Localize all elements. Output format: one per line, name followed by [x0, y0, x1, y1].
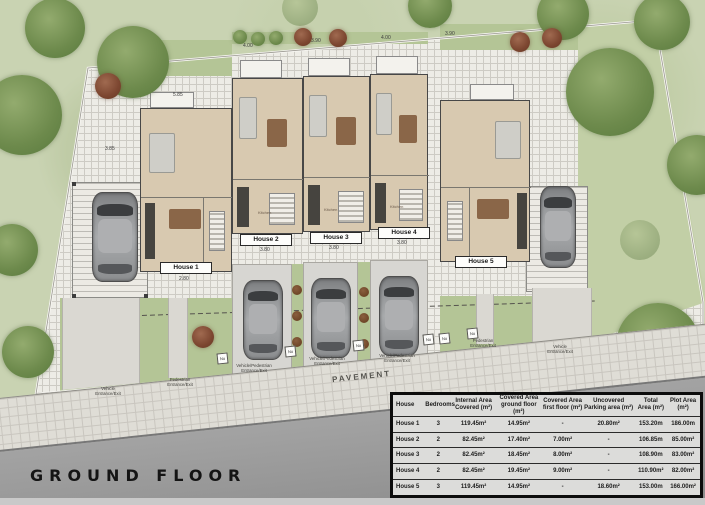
table-cell: -	[542, 484, 583, 491]
dimension-label: 2.80	[179, 276, 189, 282]
dining-table	[169, 209, 201, 229]
post	[72, 182, 76, 186]
dining-table	[399, 115, 417, 143]
pedestrian-path-left	[168, 298, 188, 378]
post	[72, 294, 76, 298]
table-cell: 14.95m²	[496, 484, 542, 491]
table-cell: 119.45m²	[451, 421, 496, 428]
dimension-label: 3.90	[311, 38, 321, 44]
dimension-label: 3.90	[445, 31, 455, 37]
table-header-cell: Bedrooms	[425, 402, 451, 409]
table-header-cell: Uncovered Parking area (m²)	[583, 398, 634, 412]
dining-table	[477, 199, 509, 219]
table-cell: 7.00m²	[542, 437, 583, 444]
red-tree-icon	[294, 28, 312, 46]
table-cell: 119.45m²	[451, 484, 496, 491]
tree-icon	[251, 32, 265, 46]
red-tree-icon	[542, 28, 562, 48]
entrance-label: Vehicle Entrance/Exit	[528, 344, 592, 355]
entrance-label: Vehicle/Pedestrian Entrance/Exit	[365, 353, 429, 364]
dining-table	[267, 119, 287, 147]
table-header-cell: Plot Area (m²)	[668, 398, 699, 412]
table-cell: 110.90m²	[634, 468, 668, 475]
table-row: House 2 2 82.45m² 17.40m² 7.00m² - 106.8…	[393, 432, 700, 448]
tree-icon	[2, 326, 54, 378]
red-tree-icon	[329, 29, 347, 47]
vehicle-entrance-path-left	[62, 298, 140, 393]
table-cell: -	[583, 468, 634, 475]
bush-icon	[359, 287, 369, 297]
table-cell: 18.60m²	[583, 484, 634, 491]
table-cell: 19.45m²	[496, 468, 542, 475]
house-number-sign: No	[352, 339, 364, 351]
tree-icon	[566, 48, 654, 136]
sofa	[309, 95, 327, 137]
table-cell: 166.00m²	[668, 484, 699, 491]
tree-icon	[620, 220, 660, 260]
table-cell: 2	[425, 437, 451, 444]
table-cell: 106.85m	[634, 437, 668, 444]
car-house5	[540, 186, 576, 268]
sofa	[149, 133, 175, 173]
table-header-cell: Total Area (m²)	[634, 398, 668, 412]
terrace	[470, 84, 514, 100]
table-cell: -	[583, 437, 634, 444]
terrace	[150, 92, 194, 108]
bush-icon	[359, 313, 369, 323]
table-row: House 1 3 119.45m² 14.95m² - 20.80m² 153…	[393, 416, 700, 432]
table-cell: 82.45m²	[451, 452, 496, 459]
table-row: House 5 3 119.45m² 14.95m² - 18.60m² 153…	[393, 479, 700, 495]
page-title: GROUND FLOOR	[30, 466, 246, 485]
table-cell: 14.95m²	[496, 421, 542, 428]
table-cell: 8.00m²	[542, 452, 583, 459]
table-cell: -	[583, 452, 634, 459]
house-1-floorplan	[140, 108, 232, 272]
stairs	[209, 211, 225, 251]
table-cell: House 3	[393, 452, 425, 459]
entrance-label: Vehicle/Pedestrian Entrance/Exit	[222, 363, 286, 374]
house-number-sign: No	[466, 327, 478, 339]
tree-icon	[269, 31, 283, 45]
dimension-label: 4.00	[243, 43, 253, 49]
dimension-label: 3.80	[260, 247, 270, 253]
tree-icon	[233, 30, 247, 44]
red-tree-icon	[192, 326, 214, 348]
table-cell: 153.00m	[634, 484, 668, 491]
house-3-label: House 3	[310, 232, 362, 244]
kitchen-counter	[375, 183, 386, 223]
table-cell: 83.00m²	[668, 452, 699, 459]
car-house3	[311, 278, 351, 358]
house-number-sign: No	[422, 333, 434, 345]
table-cell: 3	[425, 484, 451, 491]
table-cell: 17.40m²	[496, 437, 542, 444]
house-number-sign: No	[216, 352, 228, 364]
table-cell: House 2	[393, 437, 425, 444]
post	[144, 294, 148, 298]
table-cell: 82.45m²	[451, 437, 496, 444]
dining-table	[336, 117, 356, 145]
table-cell: 3	[425, 421, 451, 428]
table-cell: House 1	[393, 421, 425, 428]
dimension-label: 3.80	[397, 240, 407, 246]
table-cell: 82.00m²	[668, 468, 699, 475]
car-house4	[379, 276, 419, 356]
room-label-kitchen: Kitchen	[390, 204, 403, 209]
sofa	[376, 93, 392, 135]
house-number-sign: No	[284, 345, 296, 357]
room-label-kitchen: Kitchen	[258, 210, 271, 215]
house-2-label: House 2	[240, 234, 292, 246]
kitchen-counter	[308, 185, 320, 225]
table-cell: 153.20m	[634, 421, 668, 428]
room-label-kitchen: Kitchen	[324, 207, 337, 212]
terrace	[308, 58, 350, 76]
table-cell: House 5	[393, 484, 425, 491]
entrance-label: Vehicle/Pedestrian Entrance/Exit	[295, 356, 359, 367]
house-1-label: House 1	[160, 262, 212, 274]
dimension-label: 3.85	[105, 146, 115, 152]
table-header-cell: Covered Area ground floor (m²)	[496, 395, 542, 416]
house-4-label: House 4	[378, 227, 430, 239]
red-tree-icon	[510, 32, 530, 52]
car-house2	[243, 280, 283, 360]
table-header-cell: Internal Area Covered (m²)	[451, 398, 496, 412]
house-number-sign: No	[438, 332, 450, 344]
terrace	[376, 56, 418, 74]
entrance-label: Vehicle Entrance/Exit	[76, 386, 140, 397]
table-header-cell: Covered Area first floor (m²)	[542, 398, 583, 412]
bush-icon	[292, 285, 302, 295]
house-5-label: House 5	[455, 256, 507, 268]
car-house1	[92, 192, 138, 282]
area-schedule-table: House Bedrooms Internal Area Covered (m²…	[390, 392, 703, 498]
table-cell: 82.45m²	[451, 468, 496, 475]
dimension-label: 5.85	[173, 92, 183, 98]
stairs	[447, 201, 463, 241]
table-header-row: House Bedrooms Internal Area Covered (m²…	[393, 395, 700, 416]
road-edge	[0, 498, 705, 505]
table-cell: House 4	[393, 468, 425, 475]
site-plan: House 1 House 2 House 3 House 4 House 5 …	[0, 0, 705, 505]
table-cell: 2	[425, 452, 451, 459]
table-row: House 3 2 82.45m² 18.45m² 8.00m² - 108.9…	[393, 447, 700, 463]
pedestrian-path-right	[476, 294, 494, 344]
sofa	[495, 121, 521, 159]
tree-icon	[25, 0, 85, 58]
table-row: House 4 2 82.45m² 19.45m² 9.00m² - 110.9…	[393, 463, 700, 479]
house-5-floorplan	[440, 100, 530, 262]
dimension-label: 3.80	[329, 245, 339, 251]
table-cell: 2	[425, 468, 451, 475]
kitchen-counter	[145, 203, 155, 259]
stairs	[269, 193, 295, 225]
table-cell: 85.00m²	[668, 437, 699, 444]
table-cell: 18.45m²	[496, 452, 542, 459]
table-cell: 108.90m	[634, 452, 668, 459]
table-cell: -	[542, 421, 583, 428]
dimension-label: 4.00	[381, 35, 391, 41]
table-cell: 186.00m	[668, 421, 699, 428]
red-tree-icon	[95, 73, 121, 99]
sofa	[239, 97, 257, 139]
terrace	[240, 60, 282, 78]
entrance-label: Pedestrian Entrance/Exit	[451, 338, 515, 349]
vehicle-entrance-path-right	[532, 288, 592, 342]
entrance-label: Pedestrian Entrance/Exit	[148, 377, 212, 388]
bush-icon	[292, 311, 302, 321]
kitchen-counter	[237, 187, 249, 227]
table-cell: 20.80m²	[583, 421, 634, 428]
kitchen-counter	[517, 193, 527, 249]
stairs	[338, 191, 364, 223]
table-cell: 9.00m²	[542, 468, 583, 475]
table-header-cell: House	[393, 402, 425, 409]
